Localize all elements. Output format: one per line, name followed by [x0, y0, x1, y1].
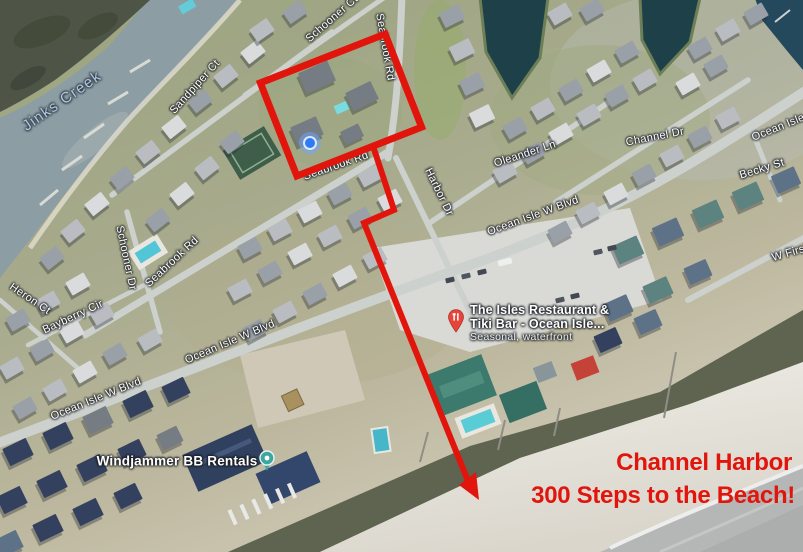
restaurant-subtitle: Seasonal, waterfront: [470, 331, 609, 343]
blue-location-dot-icon: [303, 136, 317, 150]
annotation-line1: Channel Harbor: [531, 446, 792, 479]
annotation-line2: 300 Steps to the Beach!: [531, 479, 795, 512]
restaurant-name-line1: The Isles Restaurant &: [470, 303, 609, 317]
restaurant-name-line2: Tiki Bar - Ocean Isle...: [470, 317, 609, 331]
annotated-satellite-map: Jinks Creek Schooner Ct Sandpiper Ct Sea…: [0, 0, 803, 552]
annotation-caption: Channel Harbor 300 Steps to the Beach!: [531, 446, 795, 512]
lodging-pin-icon[interactable]: [258, 450, 276, 472]
restaurant-pin-icon[interactable]: [447, 309, 465, 333]
windjammer-label[interactable]: Windjammer BB Rentals: [97, 454, 258, 469]
restaurant-label[interactable]: The Isles Restaurant & Tiki Bar - Ocean …: [470, 303, 609, 343]
